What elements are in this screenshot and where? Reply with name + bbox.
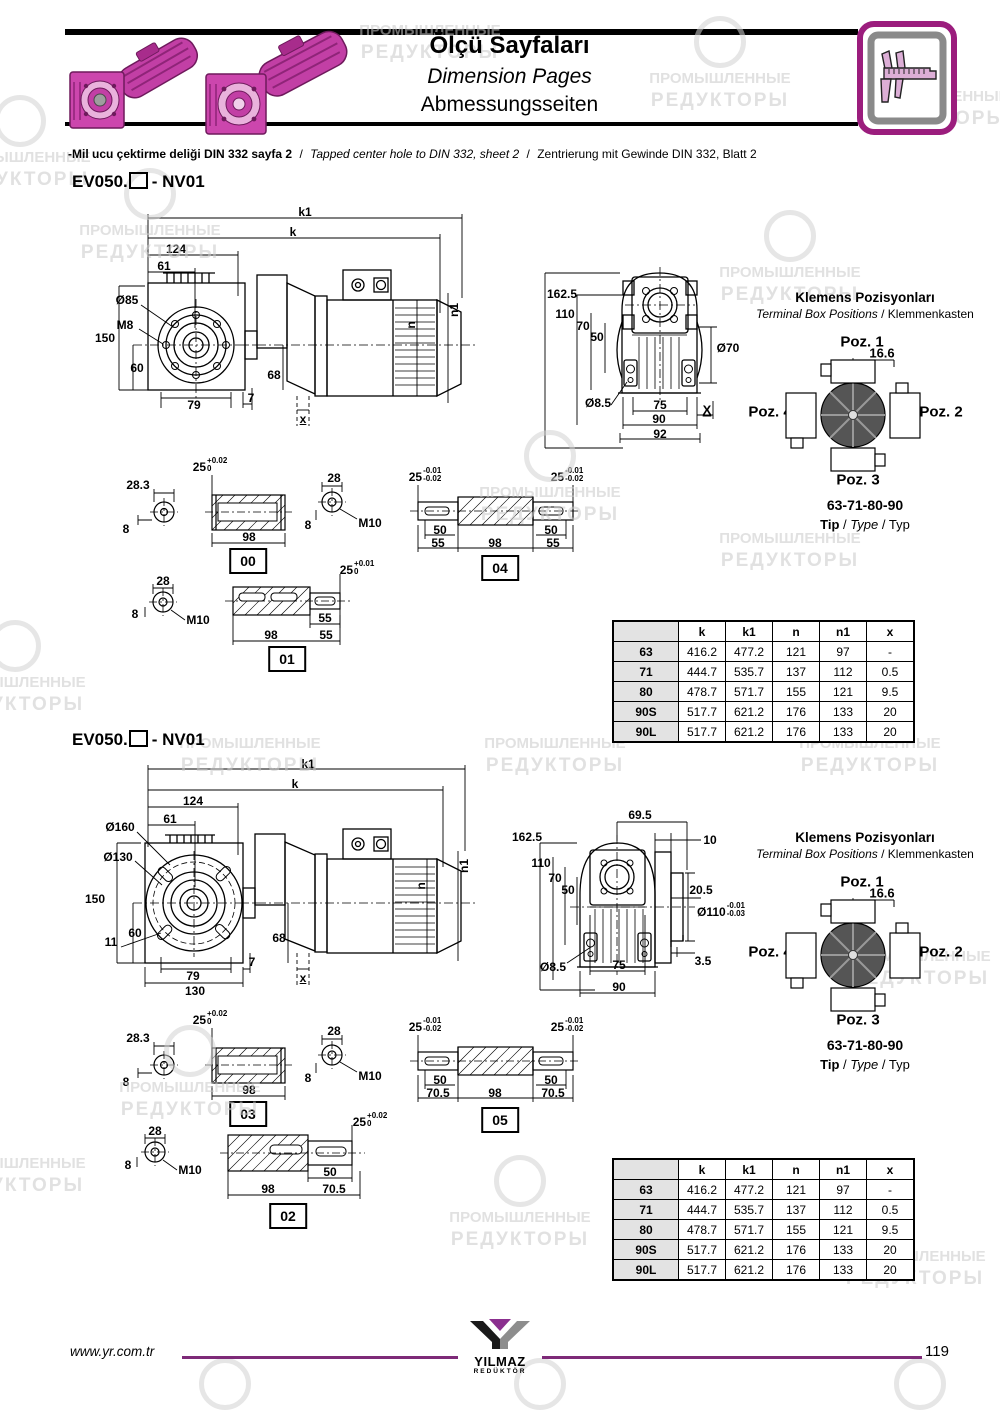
table-row: 80478.7571.71551219.5 — [613, 1220, 914, 1240]
dim-label: 70.5 — [541, 1087, 564, 1099]
model-prefix: EV050. — [72, 172, 128, 191]
dim-label: Ø85 — [116, 294, 139, 306]
dim-label: 162.5 — [547, 288, 577, 300]
dim-label: k1 — [301, 758, 314, 770]
dim-label: n — [405, 321, 417, 328]
watermark: ПРОМЫШЛЕННЫЕРЕДУКТОРЫ — [420, 1155, 620, 1252]
dim-label: 3.5 — [695, 955, 712, 967]
product-photo-gearmotors — [58, 16, 348, 144]
tolerance-label: 25+0.010 — [340, 564, 375, 576]
caliper-icon — [856, 20, 958, 136]
tolerance-label: 25-0.01-0.02 — [551, 1021, 584, 1033]
dim-label: 60 — [130, 362, 143, 374]
dim-label: 50 — [323, 1166, 336, 1178]
dim-label: 7 — [248, 392, 255, 404]
shaft-detail-02: 28 8 M10 25+0.020 50 98 70.5 02 — [120, 1115, 410, 1235]
model-prefix: EV050. — [72, 730, 128, 749]
table-row: 90L517.7621.217613320 — [613, 1260, 914, 1281]
dim-label: 61 — [163, 813, 176, 825]
dim-label: M8 — [117, 319, 134, 331]
side-view-linework-1 — [75, 198, 495, 453]
yilmaz-logo: YILMAZ REDÜKTÖR — [458, 1318, 542, 1376]
footer-website: www.yr.com.tr — [70, 1344, 154, 1359]
dim-label: 50 — [433, 524, 446, 536]
dim-label: 8 — [132, 608, 139, 620]
dim-label: 55 — [319, 629, 332, 641]
dim-label: 61 — [157, 260, 170, 272]
dim-label: 70.5 — [426, 1087, 449, 1099]
tolerance-label: 25+0.020 — [193, 461, 228, 473]
dim-label: 8 — [125, 1159, 132, 1171]
terminal-type-line: Tip / Type / Typ — [745, 1057, 985, 1072]
terminal-box-positions-1: Klemens Pozisyonları Terminal Box Positi… — [745, 290, 985, 540]
tolerance-label: 25-0.01-0.02 — [409, 471, 442, 483]
shaft-id-badge: 04 — [481, 555, 519, 581]
position-label-3: Poz. 3 — [836, 472, 879, 489]
dim-label: M10 — [358, 1070, 381, 1082]
watermark: ПРОМЫШЛЕННЫЕРЕДУКТОРЫ — [0, 1155, 115, 1198]
dim-label: 98 — [488, 537, 501, 549]
terminal-sizes: 63-71-80-90 — [745, 1037, 985, 1053]
dim-label: 8 — [123, 523, 130, 535]
tolerance-label: 25-0.01-0.02 — [409, 1021, 442, 1033]
dim-label: n1 — [458, 859, 470, 873]
dim-label: k — [290, 226, 297, 238]
dim-label: n — [415, 882, 427, 889]
terminal-device-drawing — [753, 358, 963, 473]
dim-label: 60 — [128, 927, 141, 939]
dim-label: 68 — [272, 932, 285, 944]
page-title-turkish: Ölçü Sayfaları — [352, 32, 667, 60]
din-note-english: Tapped center hole to DIN 332, sheet 2 — [310, 147, 519, 161]
tolerance-label: 25+0.020 — [353, 1116, 388, 1128]
footer-rule-right — [542, 1356, 922, 1359]
tolerance-label: Ø110-0.01-0.03 — [697, 906, 745, 918]
shaft-detail-04: 25-0.01-0.02 25-0.01-0.02 50 55 98 50 55… — [405, 455, 640, 585]
table-row: 90S517.7621.217613320 — [613, 1240, 914, 1260]
terminal-sizes: 63-71-80-90 — [745, 497, 985, 513]
dim-label: 130 — [185, 985, 205, 997]
model-heading-2: EV050.- NV01 — [72, 730, 205, 750]
watermark: ПРОМЫШЛЕННЫЕРЕДУКТОРЫ — [820, 1358, 1000, 1414]
yilmaz-y-logo-icon — [462, 1318, 538, 1349]
dim-label: n1 — [448, 303, 460, 317]
din-note: -Mil ucu çektirme deliği DIN 332 sayfa 2… — [68, 147, 757, 161]
shaft-02-linework — [120, 1115, 410, 1235]
terminal-title-en-de: Terminal Box Positions / Klemmenkasten — [745, 847, 985, 861]
dimension-table-2: k k1 n n1 x 63416.2477.212197- 71444.753… — [612, 1158, 915, 1281]
dim-label: 50 — [544, 1074, 557, 1086]
table-row: 63416.2477.212197- — [613, 1180, 914, 1200]
table-header-row: k k1 n n1 x — [613, 621, 914, 642]
shaft-id-badge: 01 — [268, 646, 306, 672]
table-row: 63416.2477.212197- — [613, 642, 914, 662]
page-title-block: Ölçü Sayfaları Dimension Pages Abmessung… — [352, 30, 667, 117]
dim-label: 50 — [544, 524, 557, 536]
dim-label: 98 — [261, 1183, 274, 1195]
dim-label: 70.5 — [322, 1183, 345, 1195]
dim-label: 50 — [590, 331, 603, 343]
dim-label: 11 — [105, 936, 118, 948]
model-heading-1: EV050.- NV01 — [72, 172, 205, 192]
side-view-drawing-1: k1 k 124 61 Ø85 M8 150 60 79 7 68 x n n1 — [75, 198, 495, 453]
watermark: ПРОМЫШЛЕННЫЕРЕДУКТОРЫ — [0, 620, 115, 717]
catalog-page: ПРОМЫШЛЕННЫЕРЕДУКТОРЫ ПРОМЫШЛЕННЫЕРЕДУКТ… — [0, 0, 1000, 1414]
dim-label: Ø70 — [717, 342, 740, 354]
dim-label: 162.5 — [512, 831, 542, 843]
shaft-id-badge: 05 — [481, 1107, 519, 1133]
dim-label: X — [703, 404, 712, 417]
side-view-drawing-2: k1 k 124 61 Ø160 Ø130 150 60 11 79 7 130… — [75, 755, 505, 1020]
table-header-row: k k1 n n1 x — [613, 1159, 914, 1180]
dim-label: 75 — [653, 399, 666, 411]
dim-label: 28 — [148, 1125, 161, 1137]
table-row: 80478.7571.71551219.5 — [613, 682, 914, 702]
din-note-german: Zentrierung mit Gewinde DIN 332, Blatt 2 — [537, 147, 756, 161]
dim-label: 28.3 — [126, 1032, 149, 1044]
dim-label: 8 — [305, 519, 312, 531]
position-label-3: Poz. 3 — [836, 1012, 879, 1029]
dim-label: 124 — [166, 243, 186, 255]
dim-label: 79 — [186, 970, 199, 982]
terminal-title-en-de: Terminal Box Positions / Klemmenkasten — [745, 307, 985, 321]
page-number: 119 — [925, 1343, 949, 1360]
dim-label: 98 — [242, 1084, 255, 1096]
dim-label: 124 — [183, 795, 203, 807]
rear-view-drawing-1: 162.5 110 70 50 Ø70 Ø8.5 75 90 92 X — [515, 265, 780, 465]
dim-label: 90 — [612, 981, 625, 993]
dim-label: 8 — [123, 1076, 130, 1088]
dim-label: 150 — [85, 893, 105, 905]
table-row: 71444.7535.71371120.5 — [613, 662, 914, 682]
dim-label: 110 — [555, 308, 574, 320]
dim-label: 55 — [431, 537, 444, 549]
footer-rule-left — [182, 1356, 458, 1359]
terminal-title-turkish: Klemens Pozisyonları — [745, 830, 985, 845]
dim-label: 70 — [548, 872, 561, 884]
model-suffix: - NV01 — [152, 730, 205, 749]
dim-label: x — [300, 413, 307, 425]
dim-label: 79 — [187, 399, 200, 411]
dim-label: M10 — [358, 517, 381, 529]
dimension-table-1: k k1 n n1 x 63416.2477.212197- 71444.753… — [612, 620, 915, 743]
table-row: 71444.7535.71371120.5 — [613, 1200, 914, 1220]
note-separator: / — [527, 147, 530, 161]
model-size-box — [129, 172, 148, 189]
shaft-id-badge: 02 — [269, 1203, 307, 1229]
dim-label: 90 — [652, 413, 665, 425]
dim-label: 75 — [612, 959, 625, 971]
dim-label: k — [292, 778, 299, 790]
model-suffix: - NV01 — [152, 172, 205, 191]
dim-label: M10 — [178, 1164, 201, 1176]
page-title-english: Dimension Pages — [352, 65, 667, 89]
dim-label: 20.5 — [689, 884, 712, 896]
dim-label: Ø8.5 — [585, 397, 611, 409]
dim-label: Ø8.5 — [540, 961, 566, 973]
side-view-linework-2 — [75, 755, 505, 1020]
terminal-title-turkish: Klemens Pozisyonları — [745, 290, 985, 305]
dim-label: 50 — [433, 1074, 446, 1086]
dim-label: 8 — [305, 1072, 312, 1084]
dim-label: Ø160 — [105, 821, 134, 833]
brand-name: YILMAZ — [458, 1355, 542, 1368]
dim-label: 98 — [488, 1087, 501, 1099]
dim-label: Ø130 — [103, 851, 132, 863]
dim-label: 7 — [249, 956, 256, 968]
din-note-turkish: -Mil ucu çektirme deliği DIN 332 sayfa 2 — [68, 147, 292, 161]
note-separator: / — [299, 147, 302, 161]
dim-label: 69.5 — [628, 809, 651, 821]
tolerance-label: 25+0.020 — [193, 1014, 228, 1026]
dim-label: 150 — [95, 332, 115, 344]
terminal-device-drawing — [753, 898, 963, 1013]
terminal-type-line: Tip / Type / Typ — [745, 517, 985, 532]
dim-label: k1 — [298, 206, 311, 218]
dim-label: 50 — [561, 884, 574, 896]
dim-label: 68 — [267, 369, 280, 381]
dim-label: 110 — [531, 857, 550, 869]
table-row: 90S517.7621.217613320 — [613, 702, 914, 722]
dim-label: 28 — [327, 1025, 340, 1037]
watermark-swirl-icon — [0, 95, 46, 147]
dim-label: 28.3 — [126, 479, 149, 491]
table-row: 90L517.7621.217613320 — [613, 722, 914, 743]
dim-label: 98 — [242, 531, 255, 543]
tolerance-label: 25-0.01-0.02 — [551, 471, 584, 483]
shaft-detail-01: 28 8 M10 25+0.010 55 98 55 01 — [125, 560, 395, 675]
dim-label: 70 — [576, 320, 589, 332]
dim-label: 28 — [327, 472, 340, 484]
rear-view-drawing-2: 69.5 10 162.5 110 70 50 20.5 Ø110-0.01-0… — [505, 795, 775, 1015]
model-size-box — [129, 730, 148, 747]
dim-label: 28 — [156, 575, 169, 587]
dim-label: 98 — [264, 629, 277, 641]
terminal-box-positions-2: Klemens Pozisyonları Terminal Box Positi… — [745, 830, 985, 1080]
dim-label: 55 — [546, 537, 559, 549]
page-title-german: Abmessungsseiten — [352, 93, 667, 117]
dim-label: 10 — [703, 834, 716, 846]
dim-label: M10 — [186, 614, 209, 626]
dim-label: x — [300, 972, 307, 984]
brand-subtitle: REDÜKTÖR — [458, 1368, 542, 1376]
dim-label: 92 — [653, 428, 666, 440]
shaft-detail-05: 25-0.01-0.02 25-0.01-0.02 50 70.5 98 50 … — [405, 1005, 640, 1145]
watermark: ПРОМЫШЛЕННЫЕРЕДУКТОРЫ — [125, 1358, 325, 1414]
dim-label: 55 — [318, 612, 331, 624]
